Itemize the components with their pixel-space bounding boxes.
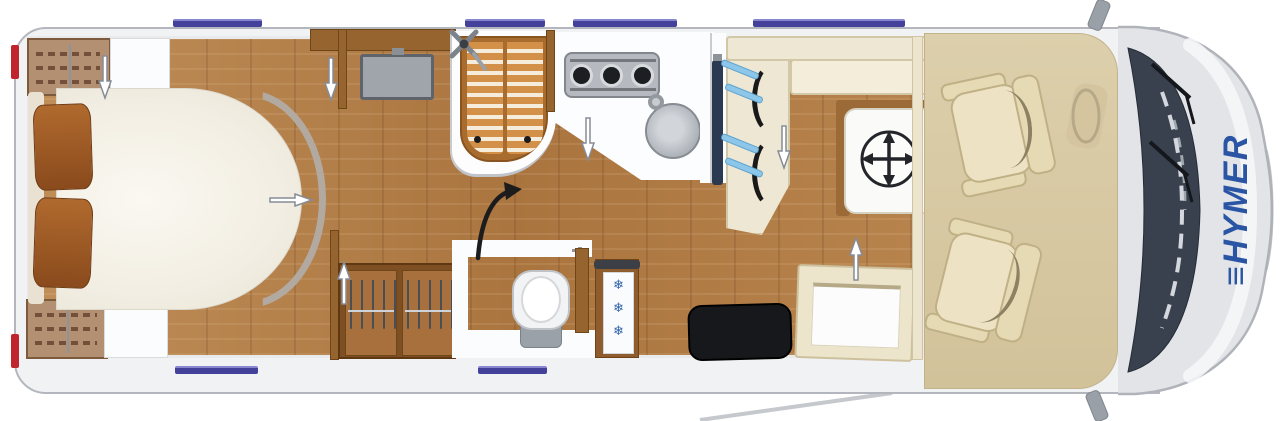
taillight-left-icon: [11, 45, 19, 79]
window-bottom-1: [175, 366, 258, 374]
fridge: ❄ ❄ ❄: [595, 259, 639, 358]
fridge-door: ❄ ❄ ❄: [603, 272, 634, 354]
island-bed-mattress: [56, 88, 302, 310]
window-top-3: [573, 19, 677, 27]
arrow-down-icon: [98, 54, 112, 100]
toilet-bowl: [521, 276, 561, 323]
bedroom-tv: [360, 54, 434, 100]
fridge-top-cap: [594, 260, 640, 269]
entry-step-well: [811, 283, 901, 349]
lounge-tv-mount: [713, 54, 722, 61]
drain-icon: [524, 136, 531, 143]
arrow-up-icon: [337, 260, 351, 306]
table-adjust-arrows-icon: [858, 126, 920, 192]
hymer-logo-mark: ≡: [1217, 264, 1255, 285]
wardrobe-door-right: [402, 270, 454, 356]
arrow-down-icon: [777, 124, 791, 170]
kitchen-sink: [645, 103, 701, 159]
bedside-cabinet-top: [110, 38, 170, 94]
bedroom-partition-wall: [338, 29, 347, 109]
pillow-bottom: [32, 197, 93, 289]
taillight-right-icon: [11, 334, 19, 368]
hanger-rail-icon: [67, 305, 69, 353]
motorhome-floorplan: ❄ ❄ ❄: [0, 0, 1280, 421]
tv-mount: [392, 48, 404, 55]
dashboard: [1065, 82, 1110, 151]
window-bottom-2: [478, 366, 547, 374]
pillow-top: [33, 103, 94, 191]
arrow-down-icon: [581, 116, 595, 162]
tv-sideboard: [687, 303, 792, 362]
arrow-up-icon: [849, 236, 863, 282]
burner-icon: [600, 64, 623, 87]
hanger-rail-icon: [69, 44, 71, 90]
shower-fitting-icon: [444, 24, 490, 74]
cab-front: ≡HYMER: [1040, 0, 1280, 421]
side-mirror-icon: [1087, 0, 1111, 32]
burner-icon: [570, 64, 593, 87]
lounge-tv: [712, 60, 723, 185]
window-top-4: [753, 19, 905, 27]
sink-faucet-icon: [648, 94, 664, 110]
hanger-rail-icon: [405, 310, 451, 312]
hymer-logo: ≡HYMER: [1217, 134, 1255, 286]
hanger-rail-icon: [348, 310, 394, 312]
burner-icon: [631, 64, 654, 87]
window-top-1: [173, 19, 262, 27]
wardrobe-door-left: [345, 270, 397, 356]
tv-cabinet-wall: [310, 29, 456, 51]
main-wardrobe: [338, 263, 456, 359]
grate-bar: [570, 59, 656, 62]
hymer-logo-text: HYMER: [1217, 134, 1255, 264]
cab-partition: [912, 36, 923, 360]
bed-slide-arrow-icon: [268, 193, 314, 207]
arrow-down-icon: [324, 56, 338, 102]
grate-bar: [570, 88, 656, 91]
toilet-fridge-wall: [575, 248, 589, 333]
drain-icon: [474, 136, 481, 143]
entry-door-open-line: [700, 391, 893, 421]
side-mirror-icon: [1085, 389, 1109, 421]
stove: [564, 52, 660, 98]
door-swing-arrow-icon: [468, 180, 524, 264]
kitchen-shower-wall: [546, 30, 555, 112]
